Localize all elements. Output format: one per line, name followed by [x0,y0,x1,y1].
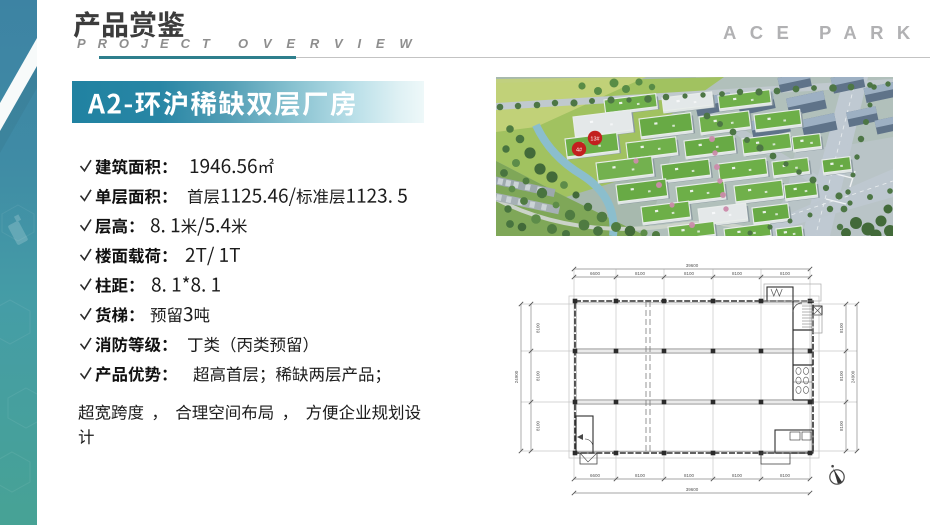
svg-text:6600: 6600 [590,473,601,478]
svg-text:24900: 24900 [851,370,856,383]
svg-text:8100: 8100 [839,322,844,333]
svg-text:8100: 8100 [839,420,844,431]
svg-text:13#: 13# [590,137,600,143]
svg-text:8100: 8100 [732,473,743,478]
svg-text:8100: 8100 [732,271,743,276]
svg-text:8100: 8100 [780,473,791,478]
svg-text:8100: 8100 [536,322,541,333]
svg-text:4#: 4# [576,148,583,154]
svg-text:8100: 8100 [635,473,646,478]
svg-text:8100: 8100 [536,420,541,431]
svg-text:8100: 8100 [780,271,791,276]
svg-text:8100: 8100 [839,370,844,381]
svg-text:24900: 24900 [514,370,519,383]
svg-text:8100: 8100 [635,271,646,276]
svg-text:8100: 8100 [536,370,541,381]
svg-text:6600: 6600 [590,271,601,276]
svg-text:8100: 8100 [684,271,695,276]
svg-text:39600: 39600 [686,263,699,268]
svg-text:39600: 39600 [686,487,699,492]
svg-text:8100: 8100 [684,473,695,478]
